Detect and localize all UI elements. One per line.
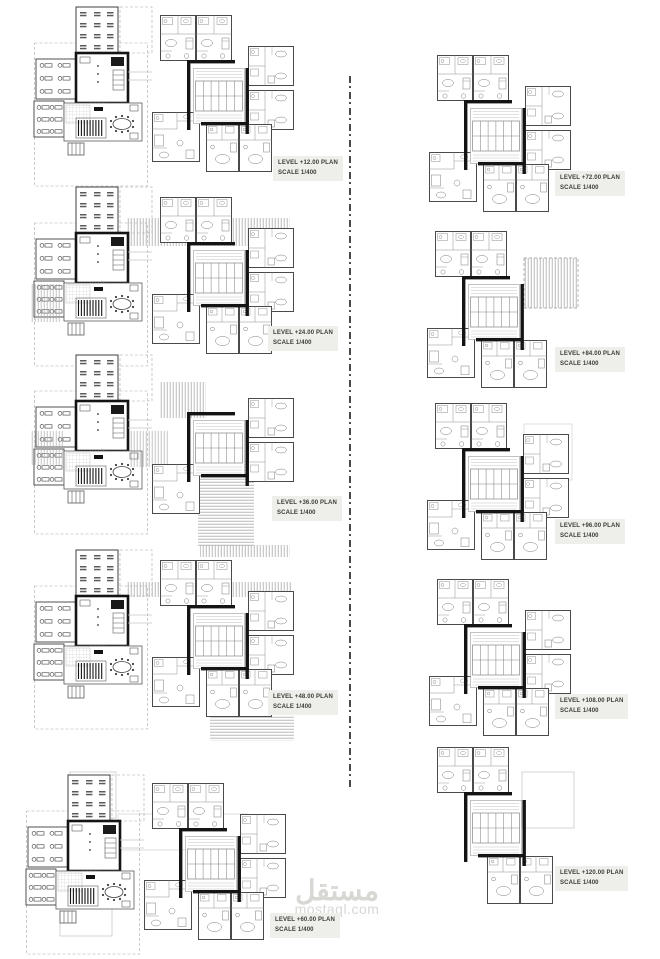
plan-label-level-24: LEVEL +24.00 PLAN SCALE 1/400 [268,326,338,351]
plan-level-text: LEVEL +12.00 PLAN [278,159,338,169]
plan-scale-text: SCALE 1/400 [278,169,338,179]
plan-level-text: LEVEL +36.00 PLAN [277,499,337,509]
plan-scale-text: SCALE 1/400 [275,926,335,936]
watermark: مستقل mostaql.com [272,876,402,917]
floor-plan-drawing-level-60 [18,766,290,958]
plan-level-text: LEVEL +60.00 PLAN [275,916,335,926]
plan-label-level-96: LEVEL +96.00 PLAN SCALE 1/400 [555,519,625,544]
plan-level-text: LEVEL +120.00 PLAN [560,869,623,879]
plan-level-text: LEVEL +72.00 PLAN [560,174,620,184]
plan-scale-text: SCALE 1/400 [560,879,623,889]
plan-label-level-108: LEVEL +108.00 PLAN SCALE 1/400 [555,694,628,719]
plan-scale-text: SCALE 1/400 [560,532,620,542]
plan-label-level-60: LEVEL +60.00 PLAN SCALE 1/400 [270,913,340,938]
plan-level-text: LEVEL +96.00 PLAN [560,522,620,532]
plan-scale-text: SCALE 1/400 [277,509,337,519]
floor-plan-drawing-level-12 [28,4,300,196]
plan-label-level-72: LEVEL +72.00 PLAN SCALE 1/400 [555,171,625,196]
drawing-sheet: LEVEL +12.00 PLAN SCALE 1/400 LEVEL +24.… [0,0,660,959]
plan-scale-text: SCALE 1/400 [560,707,623,717]
plan-level-text: LEVEL +24.00 PLAN [273,329,333,339]
plan-label-level-12: LEVEL +12.00 PLAN SCALE 1/400 [273,156,343,181]
plan-label-level-48: LEVEL +48.00 PLAN SCALE 1/400 [268,690,338,715]
column-divider-dashed-line [349,76,351,790]
plan-scale-text: SCALE 1/400 [560,360,620,370]
plan-scale-text: SCALE 1/400 [560,184,620,194]
plan-level-text: LEVEL +108.00 PLAN [560,697,623,707]
floor-plan-drawing-level-24 [28,184,300,376]
floor-plan-drawing-level-36 [28,352,300,560]
plan-label-level-84: LEVEL +84.00 PLAN SCALE 1/400 [555,347,625,372]
plan-scale-text: SCALE 1/400 [273,339,333,349]
plan-label-level-36: LEVEL +36.00 PLAN SCALE 1/400 [272,496,342,521]
plan-label-level-120: LEVEL +120.00 PLAN SCALE 1/400 [555,866,628,891]
floor-plan-drawing-level-48 [28,545,300,745]
plan-level-text: LEVEL +84.00 PLAN [560,350,620,360]
plan-level-text: LEVEL +48.00 PLAN [273,693,333,703]
plan-scale-text: SCALE 1/400 [273,703,333,713]
